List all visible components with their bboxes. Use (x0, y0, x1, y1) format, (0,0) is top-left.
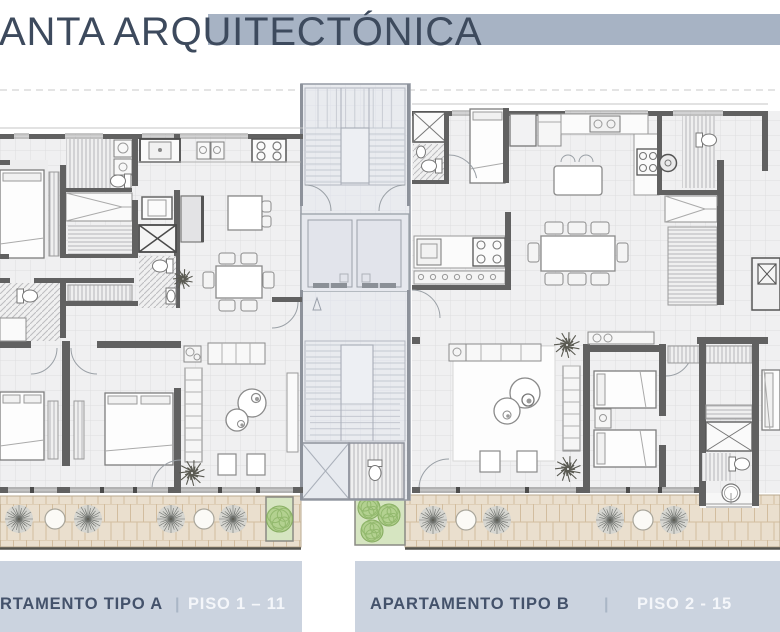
svg-text:|: | (604, 596, 608, 613)
svg-text:APARTAMENTO TIPO B: APARTAMENTO TIPO B (370, 595, 570, 613)
svg-text:APARTAMENTO TIPO A: APARTAMENTO TIPO A (0, 595, 163, 613)
svg-text:|: | (175, 596, 179, 613)
svg-text:PISO 2 - 15: PISO 2 - 15 (637, 595, 732, 613)
svg-text:ANTA ARQUITECTÓNICA: ANTA ARQUITECTÓNICA (0, 9, 482, 54)
svg-text:PISO 1 – 11: PISO 1 – 11 (188, 595, 286, 613)
